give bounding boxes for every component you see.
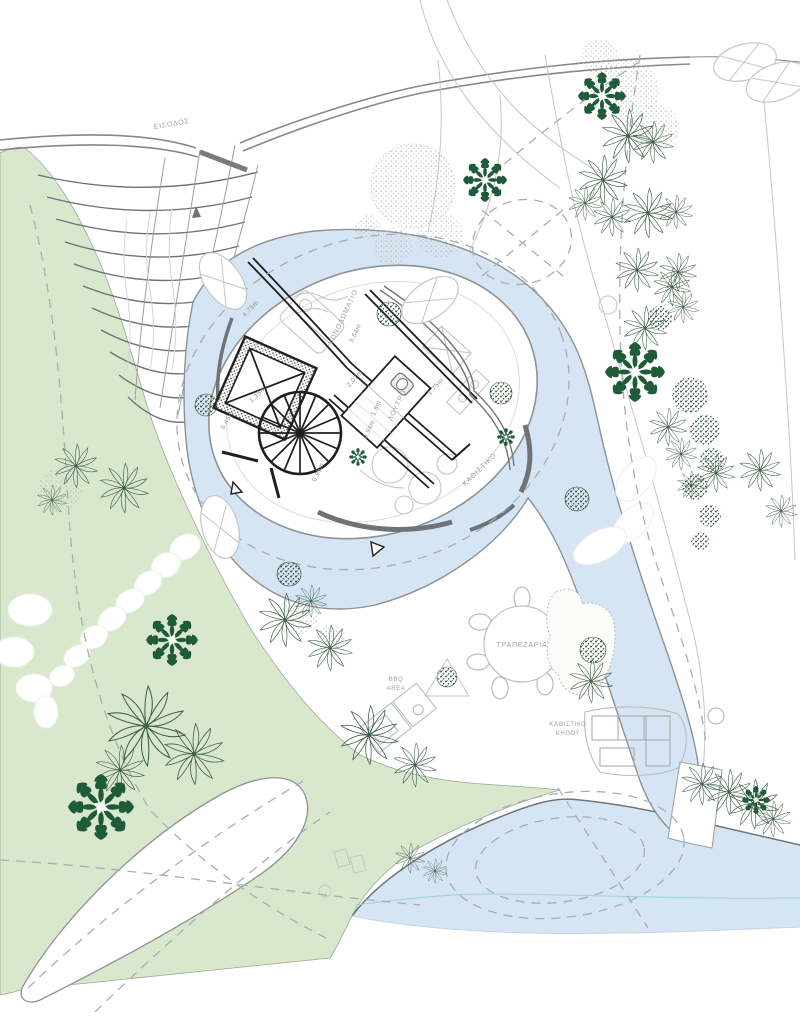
palm-tree-icon	[146, 614, 198, 666]
palm-tree-icon	[68, 774, 134, 840]
palm-tree-icon	[605, 342, 665, 402]
palm-tree-icon	[349, 448, 367, 466]
palm-tree-icon	[742, 786, 770, 814]
palm-outline-icon	[660, 253, 697, 291]
road-gate-bar	[200, 152, 247, 170]
palm-outline-icon	[568, 186, 602, 220]
garden-living-label-line1: ΚΑΘΙΣΤΙΚΟ	[549, 722, 586, 728]
palm-outline-icon	[579, 155, 627, 205]
entrance-label: ΕΙΣΟΔΟΣ	[153, 118, 190, 131]
speckle-foliage	[648, 306, 724, 550]
palm-outline-icon	[730, 779, 778, 829]
palm-outline-icon	[654, 268, 691, 306]
palm-outline-icon	[624, 188, 672, 238]
site-plan-drawing: ΕΙΣΟΔΟΣ ΥΠΝΟΔΩΜΑΤΙΟ 3.64m 4.75m 2.07m ΛΟ…	[0, 0, 800, 1031]
palm-outline-icon	[740, 449, 781, 491]
palm-outline-icon	[659, 195, 693, 229]
palm-outline-icon	[667, 291, 699, 323]
palm-outline-icon	[665, 438, 697, 470]
palm-tree-icon	[463, 158, 507, 202]
bbq-label-line1: BBQ	[389, 677, 403, 683]
dining-label: ΤΡΑΠΕΖΑΡΙΑ	[496, 642, 547, 649]
bbq-label-line2: AREA	[387, 686, 406, 692]
palm-outline-icon	[616, 248, 659, 292]
palm-outline-icon	[594, 198, 631, 236]
site-plan-canvas: ΕΙΣΟΔΟΣ ΥΠΝΟΔΩΜΑΤΙΟ 3.64m 4.75m 2.07m ΛΟ…	[0, 0, 800, 1031]
spiral-stair	[259, 392, 341, 474]
garden-living-label-line2: ΚΗΠΟΥ	[556, 731, 580, 737]
palm-tree-icon	[578, 72, 626, 120]
palm-tree-icon	[497, 428, 515, 446]
